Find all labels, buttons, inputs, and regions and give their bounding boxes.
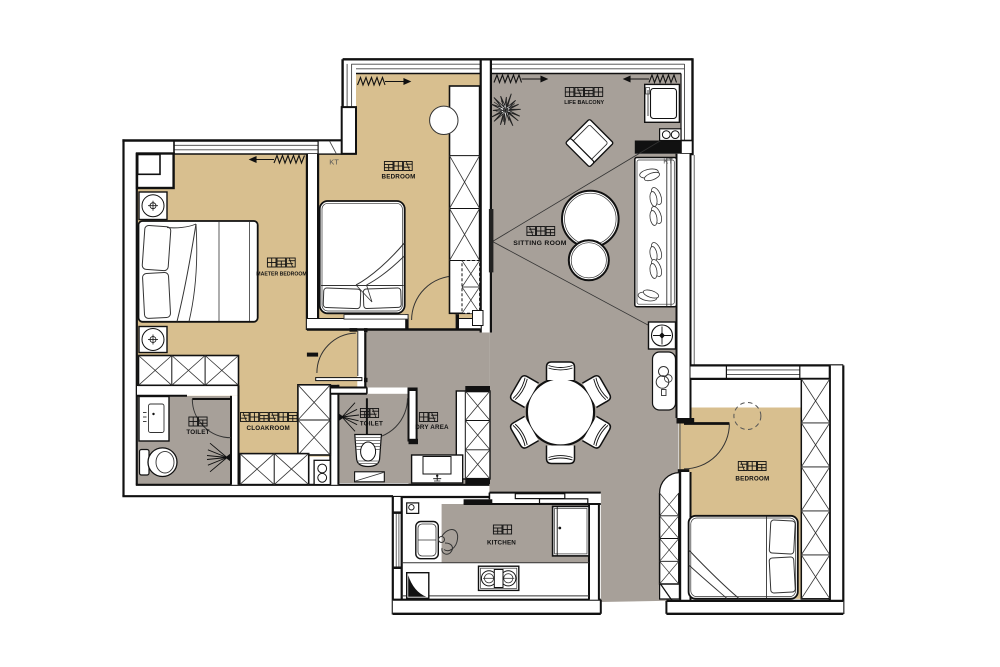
svg-text:KT: KT <box>329 158 339 167</box>
svg-text:TOILET: TOILET <box>360 420 383 427</box>
svg-text:MAETER BEDROOM: MAETER BEDROOM <box>256 272 306 278</box>
svg-text:BEDROOM: BEDROOM <box>382 174 416 181</box>
svg-text:KT: KT <box>663 157 673 166</box>
svg-text:LIFE BALCONY: LIFE BALCONY <box>564 100 604 106</box>
svg-text:KITCHEN: KITCHEN <box>487 539 516 546</box>
svg-text:CLOAKROOM: CLOAKROOM <box>247 425 290 432</box>
svg-text:TOILET: TOILET <box>186 429 209 436</box>
svg-text:SITTING ROOM: SITTING ROOM <box>513 240 566 247</box>
svg-text:DRY AREA: DRY AREA <box>415 424 449 431</box>
svg-text:BEDROOM: BEDROOM <box>735 476 769 483</box>
